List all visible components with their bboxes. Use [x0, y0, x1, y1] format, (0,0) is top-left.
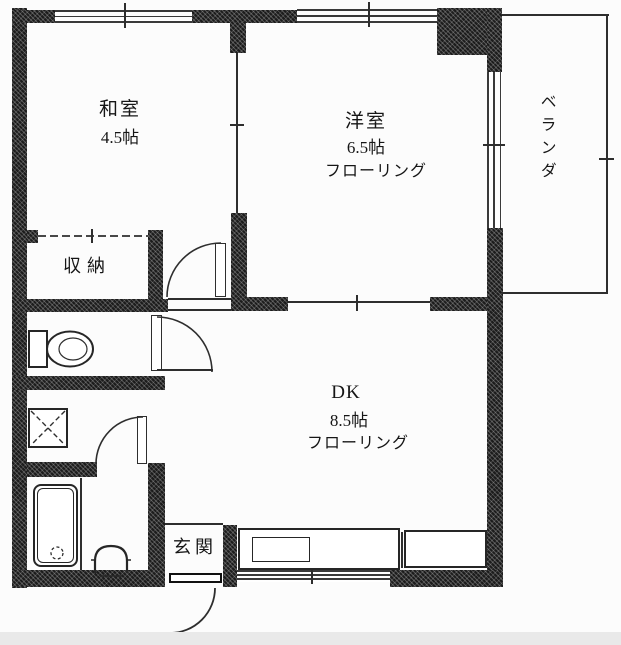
dk-room-label: DK: [322, 383, 370, 404]
washroom-door-swing-icon: [96, 417, 143, 464]
closet-label: 収納: [58, 257, 116, 277]
washitsu-room-label: 和室: [90, 100, 150, 121]
linework-layer: [0, 0, 621, 645]
washbasin-icon: [95, 546, 127, 573]
washitsu-size-label: 4.5帖: [88, 129, 152, 148]
youshitsu-size-label: 6.5帖: [336, 139, 396, 158]
youshitsu-flooring-label: フローリング: [316, 163, 436, 181]
bath-drain-icon: [51, 547, 63, 559]
toilet-icon: [47, 332, 93, 367]
dk-flooring-label: フローリング: [298, 435, 418, 453]
youshitsu-room-label: 洋室: [338, 112, 394, 133]
veranda-label: ベランダ: [537, 93, 555, 185]
genkan-label: 玄関: [166, 538, 224, 558]
scan-edge-band: [0, 632, 621, 645]
toilet-door-swing-icon: [157, 317, 212, 372]
entrance-door-swing-icon: [170, 588, 215, 633]
washitsu-door-swing-icon: [167, 243, 221, 297]
dk-size-label: 8.5帖: [318, 412, 380, 431]
floorplan: 和室 4.5帖 洋室 6.5帖 フローリング 収納 DK 8.5帖 フローリング…: [0, 0, 621, 645]
